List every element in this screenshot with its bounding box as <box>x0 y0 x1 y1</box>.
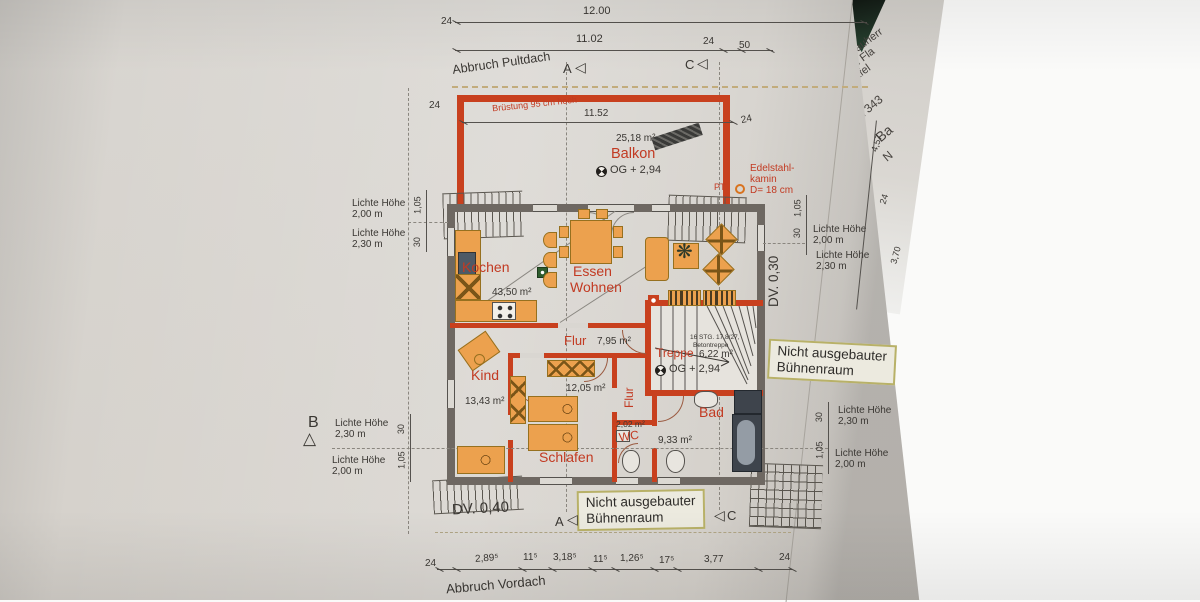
clearance-value: 2,30 m <box>838 416 869 427</box>
clearance-value: 2,00 m <box>835 459 866 470</box>
wall-red <box>450 323 650 328</box>
room-label-wc: WC <box>618 429 640 445</box>
dim-30: 30 <box>814 412 824 422</box>
kamin-label: kamin <box>750 174 777 185</box>
clearance-value: 2,30 m <box>816 261 847 272</box>
dim-11-02: 11.02 <box>576 33 603 46</box>
chair <box>559 246 569 258</box>
edge-dim-line <box>856 120 877 309</box>
section-arrow-icon: ◁ <box>575 60 586 76</box>
balkon-area: 25,18 m² <box>616 133 655 144</box>
plant-icon: ❋ <box>676 241 693 264</box>
balkon-label: Balkon <box>611 146 655 163</box>
chair <box>596 209 608 219</box>
section-marker-c: C <box>727 509 736 524</box>
dim-17: 17⁵ <box>659 555 674 566</box>
dim-1-05: 1,05 <box>815 441 825 459</box>
wall <box>447 477 765 485</box>
dim-2-89: 2,89⁵ <box>475 552 499 565</box>
dim-1-05: 1,05 <box>397 451 407 469</box>
treppe-level: OG + 2,94 <box>669 363 720 376</box>
roof-outline-dashed <box>452 86 868 88</box>
pt-label: PT <box>714 182 726 192</box>
section-arrow-icon: △ <box>303 429 316 448</box>
post <box>648 295 659 306</box>
toilet <box>666 450 685 473</box>
chair <box>613 226 623 238</box>
bed <box>528 396 578 422</box>
room-label-wohnen: Wohnen <box>570 280 622 296</box>
door-opening <box>520 353 544 358</box>
wall-red <box>652 448 657 482</box>
edge-dim: 3,70 <box>889 245 903 265</box>
dim-30: 30 <box>396 424 406 434</box>
kamin-label: D= 18 cm <box>750 185 793 196</box>
window <box>533 204 557 212</box>
bathtub <box>732 414 762 472</box>
attic-note-box: Nicht ausgebauter Bühnenraum <box>767 339 897 386</box>
balcony-door-opening <box>588 204 634 212</box>
room-label-flur: Flur <box>564 334 586 349</box>
stair-note: 16 STG. 17,8/27, <box>690 334 740 341</box>
stove <box>492 302 516 320</box>
clearance-label: Lichte Höhe <box>335 418 388 429</box>
dim-11: 11⁵ <box>593 554 608 565</box>
edge-dim: 24 <box>878 193 891 206</box>
clearance-value: 2,00 m <box>332 466 363 477</box>
dim-30: 30 <box>412 237 422 247</box>
room-area-schlafen: 12,05 m² <box>566 383 605 394</box>
window <box>447 380 455 408</box>
chair-round <box>543 252 557 268</box>
roof-outline-dashed <box>408 88 409 534</box>
chair <box>559 226 569 238</box>
dim-24: 24 <box>441 16 452 27</box>
dim-24-right: 24 <box>740 113 753 126</box>
dim-line <box>426 190 427 252</box>
section-arrow-icon: ◁ <box>714 508 725 524</box>
dim-3-18: 3,18⁵ <box>553 552 577 563</box>
clearance-value: 2,30 m <box>352 239 383 250</box>
chair <box>613 246 623 258</box>
sofa <box>645 237 669 281</box>
dim-1-05: 1,05 <box>793 199 803 217</box>
clearance-label: Lichte Höhe <box>352 228 405 239</box>
dining-table <box>570 220 612 264</box>
dim-11-52: 11.52 <box>584 108 608 119</box>
clearance-label: Lichte Höhe <box>838 405 891 416</box>
chimney-icon <box>735 184 745 194</box>
clearance-value: 2,30 m <box>335 429 366 440</box>
clearance-label: Lichte Höhe <box>813 224 866 235</box>
dim-1-05: 1,05 <box>413 196 423 214</box>
dim-30: 30 <box>792 228 802 238</box>
section-line-c <box>719 62 720 510</box>
section-arrow-icon: ◁ <box>697 56 708 72</box>
room-label-bad: Bad <box>699 405 724 421</box>
window <box>658 477 680 485</box>
door-opening <box>558 323 588 328</box>
window <box>540 477 572 485</box>
attic-note-line1: Nicht ausgebauter <box>586 493 696 511</box>
section-marker-a: A <box>555 515 564 530</box>
clearance-label: Lichte Höhe <box>352 198 405 209</box>
wardrobe <box>547 360 595 377</box>
desk <box>458 331 501 372</box>
clearance-value: 2,00 m <box>813 235 844 246</box>
room-label-essen: Essen <box>573 264 612 280</box>
clearance-label: Lichte Höhe <box>332 455 385 466</box>
tick <box>452 20 460 25</box>
room-label-treppe: Treppe <box>656 347 694 361</box>
edge-dim: 4,57 <box>869 133 884 153</box>
balcony-parapet <box>457 95 464 208</box>
attic-note-line2: Bühnenraum <box>586 509 696 527</box>
chimney-shadow <box>651 123 703 151</box>
dim-line <box>462 122 734 123</box>
clearance-value: 2,00 m <box>352 209 383 220</box>
wall-red <box>508 440 513 482</box>
dim-line <box>410 414 411 482</box>
level-marker-icon <box>655 365 666 376</box>
dim-1-26: 1,26⁵ <box>620 553 644 564</box>
room-area-treppe: 6,22 m² <box>699 349 733 360</box>
room-label-kind: Kind <box>471 368 499 384</box>
wall-red <box>612 358 617 388</box>
wall-red <box>652 396 657 426</box>
clearance-label: Lichte Höhe <box>816 250 869 261</box>
dim-24: 24 <box>779 552 790 563</box>
wardrobe <box>510 376 526 424</box>
tick <box>452 48 460 53</box>
section-arrow-icon: ◁ <box>567 512 578 528</box>
dv-040-label: DV. 0,40 <box>452 499 510 519</box>
clearance-label: Lichte Höhe <box>835 448 888 459</box>
dv-030-label: DV. 0,30 <box>766 222 781 307</box>
window <box>616 477 638 485</box>
door-swing <box>658 396 684 422</box>
dim-3-77: 3,77 <box>704 554 723 565</box>
room-area-bad: 9,33 m² <box>658 435 692 446</box>
room-area-flur: 7,95 m² <box>597 336 631 347</box>
armchair <box>702 253 735 286</box>
section-marker-c: C <box>685 58 694 73</box>
room-area-kochen: 43,50 m² <box>492 287 531 298</box>
chair <box>578 209 590 219</box>
shower <box>734 390 762 414</box>
corner-cabinet <box>455 274 481 300</box>
bathtub-basin <box>737 420 755 465</box>
roof-outline-dashed <box>435 532 791 533</box>
bookshelf <box>668 290 701 306</box>
room-area-kind: 13,43 m² <box>465 396 504 407</box>
level-marker-icon <box>596 166 607 177</box>
desk-chair <box>474 354 485 365</box>
balcony-parapet <box>460 95 730 102</box>
window <box>757 225 765 251</box>
bed <box>528 424 578 451</box>
dim-line <box>455 22 867 23</box>
chair-round <box>543 272 557 288</box>
room-label-kochen: Kochen <box>462 260 509 276</box>
attic-note-box: Nicht ausgebauter Bühnenraum <box>577 489 705 532</box>
balkon-level: OG + 2,94 <box>610 164 661 177</box>
floorplan-photo: auherr lfi Fla üttfel 7343 Ba N 4,57 24 … <box>0 0 1200 600</box>
room-label-flur-vertical: Flur <box>623 370 637 408</box>
window <box>652 204 670 212</box>
dim-24-left: 24 <box>429 100 440 111</box>
dim-11: 11⁵ <box>523 552 538 563</box>
toilet <box>622 450 640 473</box>
chair-round <box>543 232 557 248</box>
abbruch-pultdach-label: Abbruch Pultdach <box>451 49 551 77</box>
chest <box>457 446 505 474</box>
section-marker-a: A <box>563 62 572 77</box>
window <box>447 228 455 256</box>
bookshelf <box>703 290 736 306</box>
dim-12-00: 12.00 <box>583 5 611 18</box>
clearance-line <box>408 222 448 223</box>
kamin-label: Edelstahl- <box>750 163 794 174</box>
dim-line <box>828 402 829 474</box>
abbruch-vordach-label: Abbruch Vordach <box>446 574 547 597</box>
dim-line <box>806 195 807 255</box>
room-label-schlafen: Schlafen <box>539 450 593 466</box>
dim-24: 24 <box>703 36 714 47</box>
